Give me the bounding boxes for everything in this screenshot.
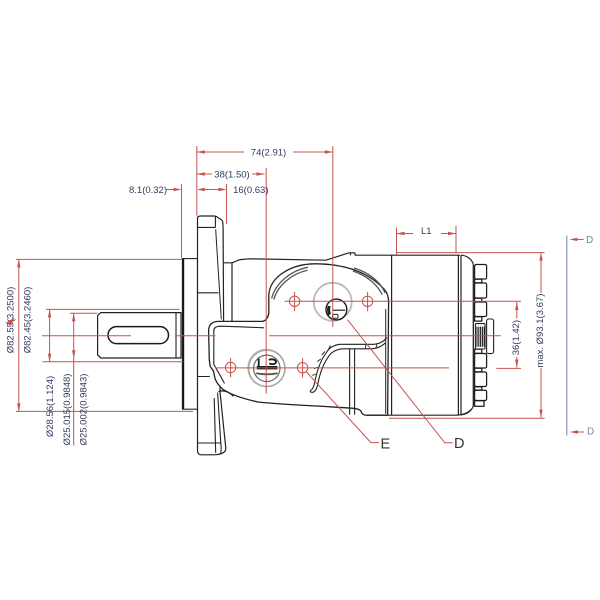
svg-text:Ø82.45(3.2460): Ø82.45(3.2460) [22,287,33,354]
svg-text:8.1(0.32): 8.1(0.32) [129,185,167,196]
svg-text:max. Ø93.1(3.67): max. Ø93.1(3.67) [535,294,546,368]
svg-text:L1: L1 [421,226,432,237]
svg-text:D: D [587,427,594,438]
svg-text:16(0.63): 16(0.63) [233,185,268,196]
svg-text:E: E [381,437,391,453]
svg-text:D: D [586,235,593,246]
svg-text:Ø28.56(1.124): Ø28.56(1.124) [45,376,56,437]
svg-text:D: D [454,436,464,452]
svg-text:Ø25.002(0.9843): Ø25.002(0.9843) [79,374,90,446]
svg-text:36(1.42): 36(1.42) [511,320,522,355]
svg-text:Ø25.015(0.9848): Ø25.015(0.9848) [62,374,73,446]
svg-text:38(1.50): 38(1.50) [214,169,249,180]
svg-text:74(2.91): 74(2.91) [251,147,286,158]
